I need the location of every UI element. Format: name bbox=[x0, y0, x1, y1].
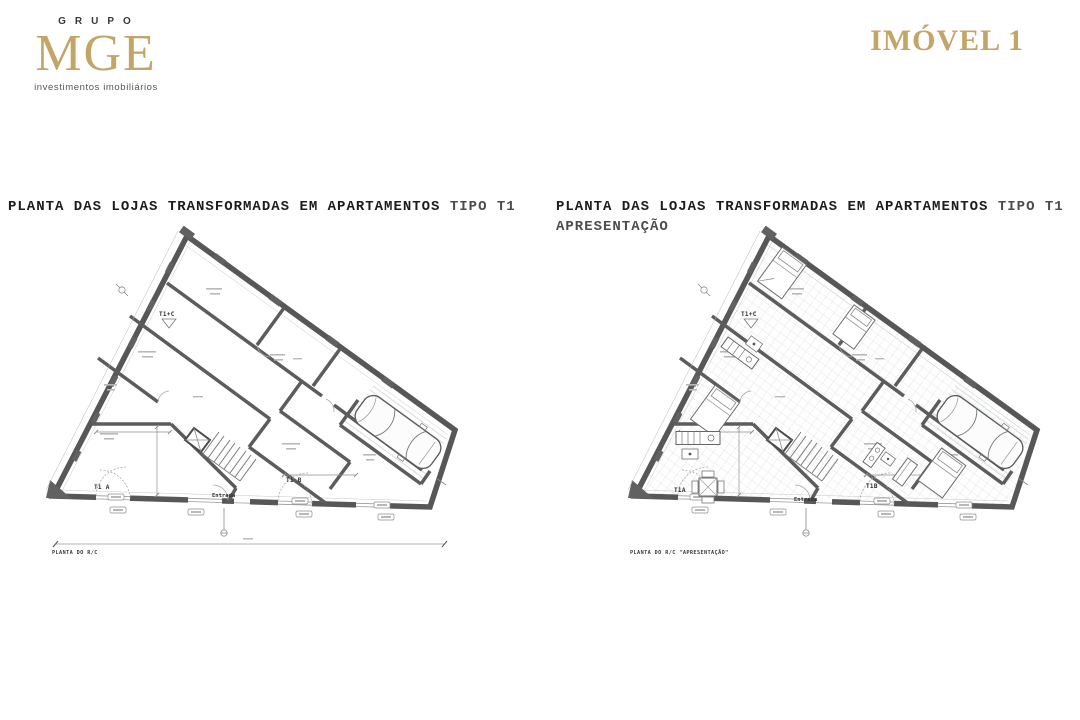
label-entrada: Entrada bbox=[212, 493, 235, 499]
label-t1b: T1 B bbox=[286, 477, 302, 484]
company-logo: GRUPO MGE investimentos imobiliários bbox=[30, 16, 162, 93]
left-plan-title: PLANTA DAS LOJAS TRANSFORMADAS EM APARTA… bbox=[8, 199, 516, 215]
label-t1a: T1A bbox=[674, 487, 686, 494]
logo-mge-text: MGE bbox=[30, 29, 162, 78]
label-t1a: T1 A bbox=[94, 484, 110, 491]
label-t1c: T1+C bbox=[159, 311, 175, 318]
floor-plan-left: T1+C T1 A T1 B Entrada PLANTA DO R/C bbox=[38, 226, 462, 562]
left-plan-caption: PLANTA DO R/C bbox=[52, 550, 98, 556]
right-plan-caption: PLANTA DO R/C "APRESENTAÇÃO" bbox=[630, 549, 729, 556]
logo-subtitle: investimentos imobiliários bbox=[30, 82, 162, 93]
label-t1c: T1+C bbox=[741, 311, 757, 318]
page-title: IMÓVEL 1 bbox=[870, 24, 1024, 58]
overall-dimension bbox=[53, 538, 447, 547]
label-t1b: T1B bbox=[866, 483, 878, 490]
kitchen-counter-t1a bbox=[676, 432, 720, 445]
floor-plan-right: T1+C T1A T1B Entrada PLANTA DO R/C "APRE… bbox=[620, 226, 1044, 562]
left-plan-title-suffix: TIPO T1 bbox=[450, 199, 516, 215]
table-t1a-small bbox=[682, 449, 698, 459]
right-plan-title-main: PLANTA DAS LOJAS TRANSFORMADAS EM APARTA… bbox=[556, 199, 988, 215]
right-plan-title-suffix: TIPO T1 bbox=[998, 199, 1064, 215]
label-entrada: Entrada bbox=[794, 497, 817, 503]
slide-canvas: GRUPO MGE investimentos imobiliários IMÓ… bbox=[0, 0, 1080, 720]
left-plan-title-main: PLANTA DAS LOJAS TRANSFORMADAS EM APARTA… bbox=[8, 199, 440, 215]
